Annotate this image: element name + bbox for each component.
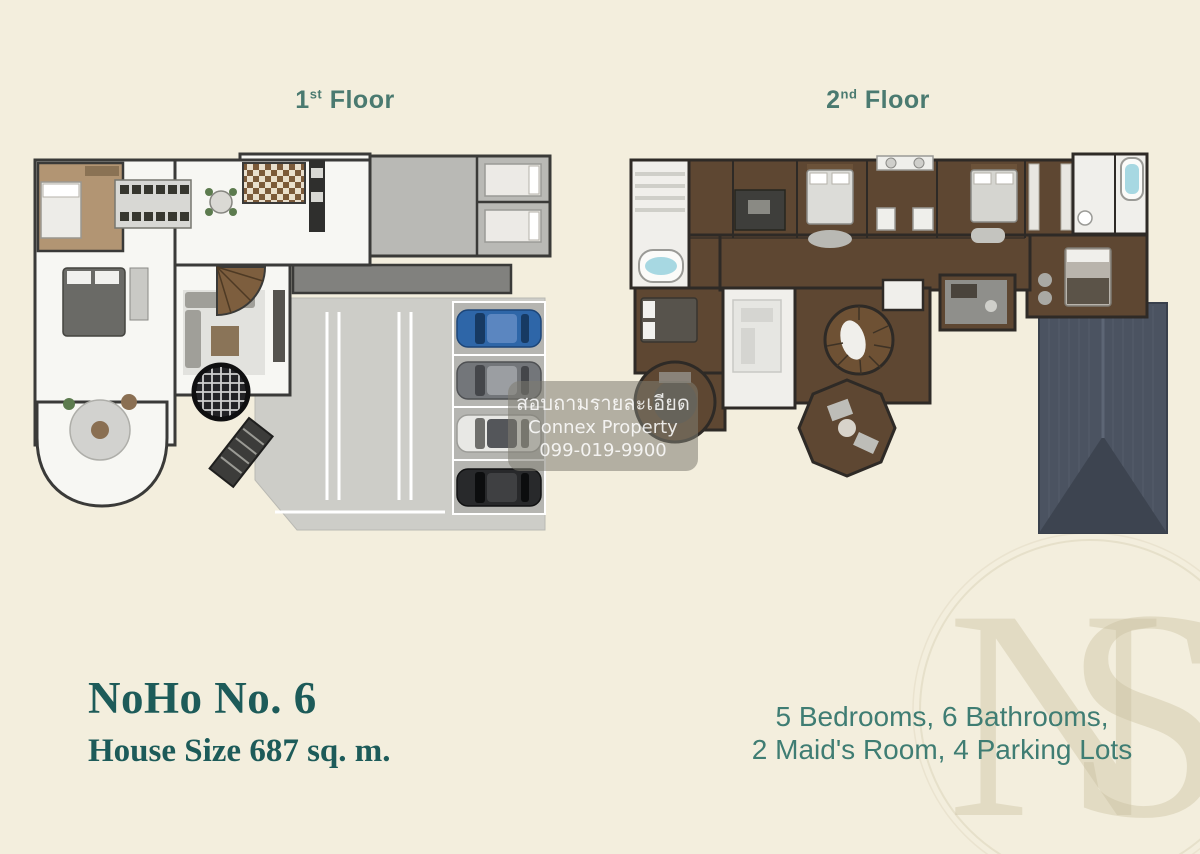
garage-roof [1039,303,1167,533]
bedroom-left [641,298,697,342]
study-room [735,190,785,230]
dining-table [115,180,191,228]
watermark-thai-line: สอบถามรายละเอียด [516,390,690,416]
first-floor-plan [25,140,570,535]
watermark-phone: 099-019-9900 [539,439,667,462]
second-floor-label: 2nd Floor [728,86,1028,115]
hallway [293,265,511,293]
second-floor-ordinal: nd [841,87,858,102]
car-black [457,469,541,506]
features-line-2: 2 Maid's Room, 4 Parking Lots [742,733,1142,766]
contact-watermark: สอบถามรายละเอียด Connex Property 099-019… [508,381,698,471]
house-size: House Size 687 sq. m. [88,733,391,770]
first-floor-number: 1 [295,86,309,114]
ns-monogram-watermark: N S [905,515,1200,854]
second-floor-plan [615,140,1185,540]
stair-landing-room [883,280,923,310]
bedroom-topleft [38,163,123,251]
master-bathroom [631,160,689,288]
features-line-1: 5 Bedrooms, 6 Bathrooms, [742,700,1142,733]
sitting-room [945,280,1007,324]
first-floor-word: Floor [322,86,394,114]
open-void [723,288,795,408]
bathroom-topright [1073,154,1147,234]
brochure-canvas: N S 1st Floor 2nd Floor [0,0,1200,854]
first-floor-label: 1st Floor [195,86,495,115]
title-block: NoHo No. 6 House Size 687 sq. m. [88,672,391,770]
second-floor-number: 2 [826,86,840,114]
house-name: NoHo No. 6 [88,672,391,724]
breakfast-table [205,188,237,216]
spiral-staircase [825,306,893,374]
first-floor-ordinal: st [310,87,323,102]
lattice-dome [194,365,248,419]
features-block: 5 Bedrooms, 6 Bathrooms, 2 Maid's Room, … [742,700,1142,766]
bedroom-2 [807,164,853,248]
car-blue [457,310,541,347]
watermark-company: Connex Property [528,416,678,439]
second-floor-word: Floor [857,86,929,114]
